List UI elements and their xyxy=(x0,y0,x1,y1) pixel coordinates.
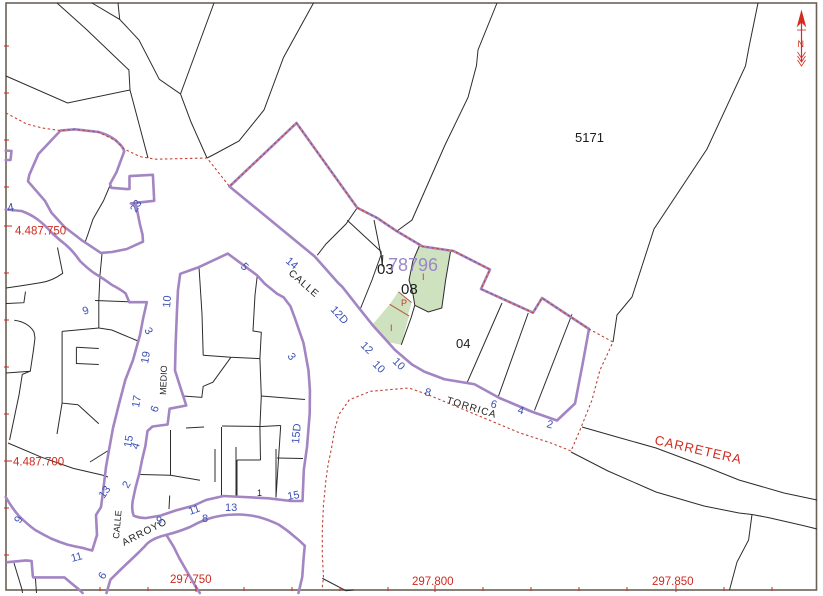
svg-text:4.487.750: 4.487.750 xyxy=(15,226,66,238)
svg-text:15: 15 xyxy=(286,489,300,503)
svg-text:1: 1 xyxy=(257,488,262,498)
svg-text:I: I xyxy=(422,272,425,282)
svg-text:17: 17 xyxy=(130,394,144,408)
svg-text:78796: 78796 xyxy=(388,255,438,275)
svg-text:297.750: 297.750 xyxy=(170,574,212,586)
svg-text:13: 13 xyxy=(225,502,237,514)
svg-text:P: P xyxy=(401,298,407,308)
svg-text:19: 19 xyxy=(139,350,153,364)
svg-text:04: 04 xyxy=(456,336,470,351)
svg-text:5171: 5171 xyxy=(575,130,604,145)
svg-text:15D: 15D xyxy=(290,423,304,444)
svg-text:297.850: 297.850 xyxy=(652,576,694,588)
svg-text:I: I xyxy=(390,323,393,333)
svg-text:4.487.700: 4.487.700 xyxy=(13,457,64,469)
svg-text:08: 08 xyxy=(401,281,418,298)
svg-text:8: 8 xyxy=(202,513,208,525)
svg-text:10: 10 xyxy=(161,295,174,308)
svg-text:MEDIO: MEDIO xyxy=(158,365,169,395)
svg-text:297.800: 297.800 xyxy=(412,576,454,588)
svg-text:9: 9 xyxy=(156,515,162,527)
svg-text:N: N xyxy=(798,39,805,49)
